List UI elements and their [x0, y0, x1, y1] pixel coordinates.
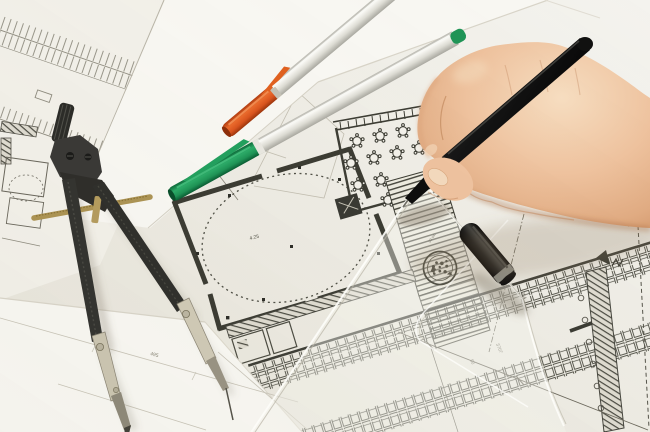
blueprint-photo: PLANUNG · ARCHITEKTUR · GRUNDRISS · M 1:… — [0, 0, 650, 432]
black-pen-top — [577, 37, 593, 51]
photo-canvas: PLANUNG · ARCHITEKTUR · GRUNDRISS · M 1:… — [0, 0, 650, 432]
